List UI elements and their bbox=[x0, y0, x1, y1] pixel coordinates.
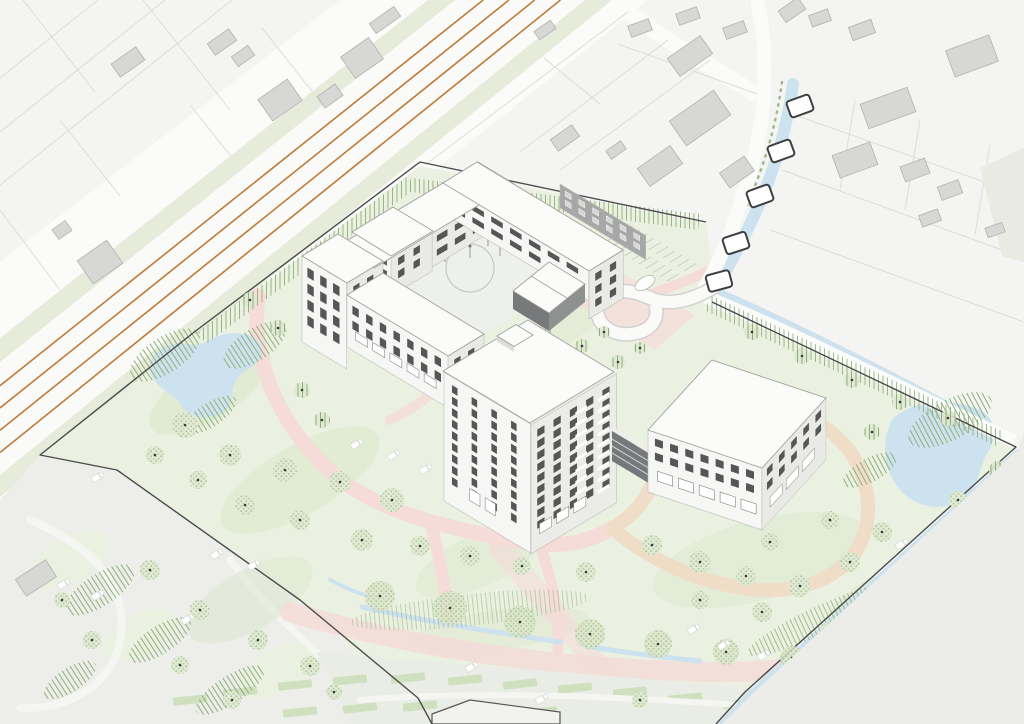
tree bbox=[872, 522, 892, 542]
tree bbox=[689, 551, 711, 573]
tree bbox=[219, 444, 241, 466]
young-tree bbox=[270, 320, 286, 336]
young-tree bbox=[794, 348, 810, 364]
tree bbox=[736, 566, 756, 586]
young-tree bbox=[864, 424, 880, 440]
tree bbox=[235, 495, 255, 515]
young-tree bbox=[242, 292, 258, 308]
tree bbox=[223, 691, 241, 709]
tree bbox=[146, 446, 164, 464]
tree bbox=[365, 581, 395, 611]
young-tree bbox=[611, 355, 625, 369]
tree bbox=[83, 631, 101, 649]
tree bbox=[54, 592, 70, 608]
tree bbox=[273, 458, 297, 482]
young-tree bbox=[294, 382, 310, 398]
tree bbox=[171, 656, 189, 674]
tree bbox=[752, 602, 772, 622]
tree bbox=[513, 557, 531, 575]
tree bbox=[290, 510, 310, 530]
tree bbox=[460, 546, 480, 566]
tree bbox=[329, 471, 351, 493]
tree bbox=[433, 591, 467, 625]
tree bbox=[380, 488, 404, 512]
tree bbox=[576, 562, 596, 582]
tree bbox=[410, 536, 430, 556]
tree bbox=[691, 591, 709, 609]
tree bbox=[140, 560, 160, 580]
tree bbox=[821, 511, 839, 529]
tree bbox=[840, 552, 860, 572]
tree bbox=[504, 606, 536, 638]
tree bbox=[172, 412, 198, 438]
tree bbox=[351, 529, 373, 551]
young-tree bbox=[634, 342, 646, 354]
young-tree bbox=[844, 372, 860, 388]
young-tree bbox=[598, 326, 610, 338]
tree bbox=[189, 471, 207, 489]
young-tree bbox=[314, 412, 330, 428]
tree bbox=[789, 575, 811, 597]
site-plan-stage: Bird's-eye axonometric illustration of a… bbox=[0, 0, 1024, 724]
site-plan-rendering: Axonometric architectural site plan rend… bbox=[0, 0, 1024, 724]
tree bbox=[642, 535, 662, 555]
young-tree bbox=[892, 394, 908, 410]
tree bbox=[248, 630, 268, 650]
tree bbox=[300, 656, 320, 676]
tree bbox=[575, 619, 605, 649]
tree bbox=[326, 684, 342, 700]
tree bbox=[761, 533, 779, 551]
young-tree bbox=[744, 324, 760, 340]
tree bbox=[644, 630, 672, 658]
tree bbox=[632, 692, 648, 708]
young-tree bbox=[940, 410, 956, 426]
